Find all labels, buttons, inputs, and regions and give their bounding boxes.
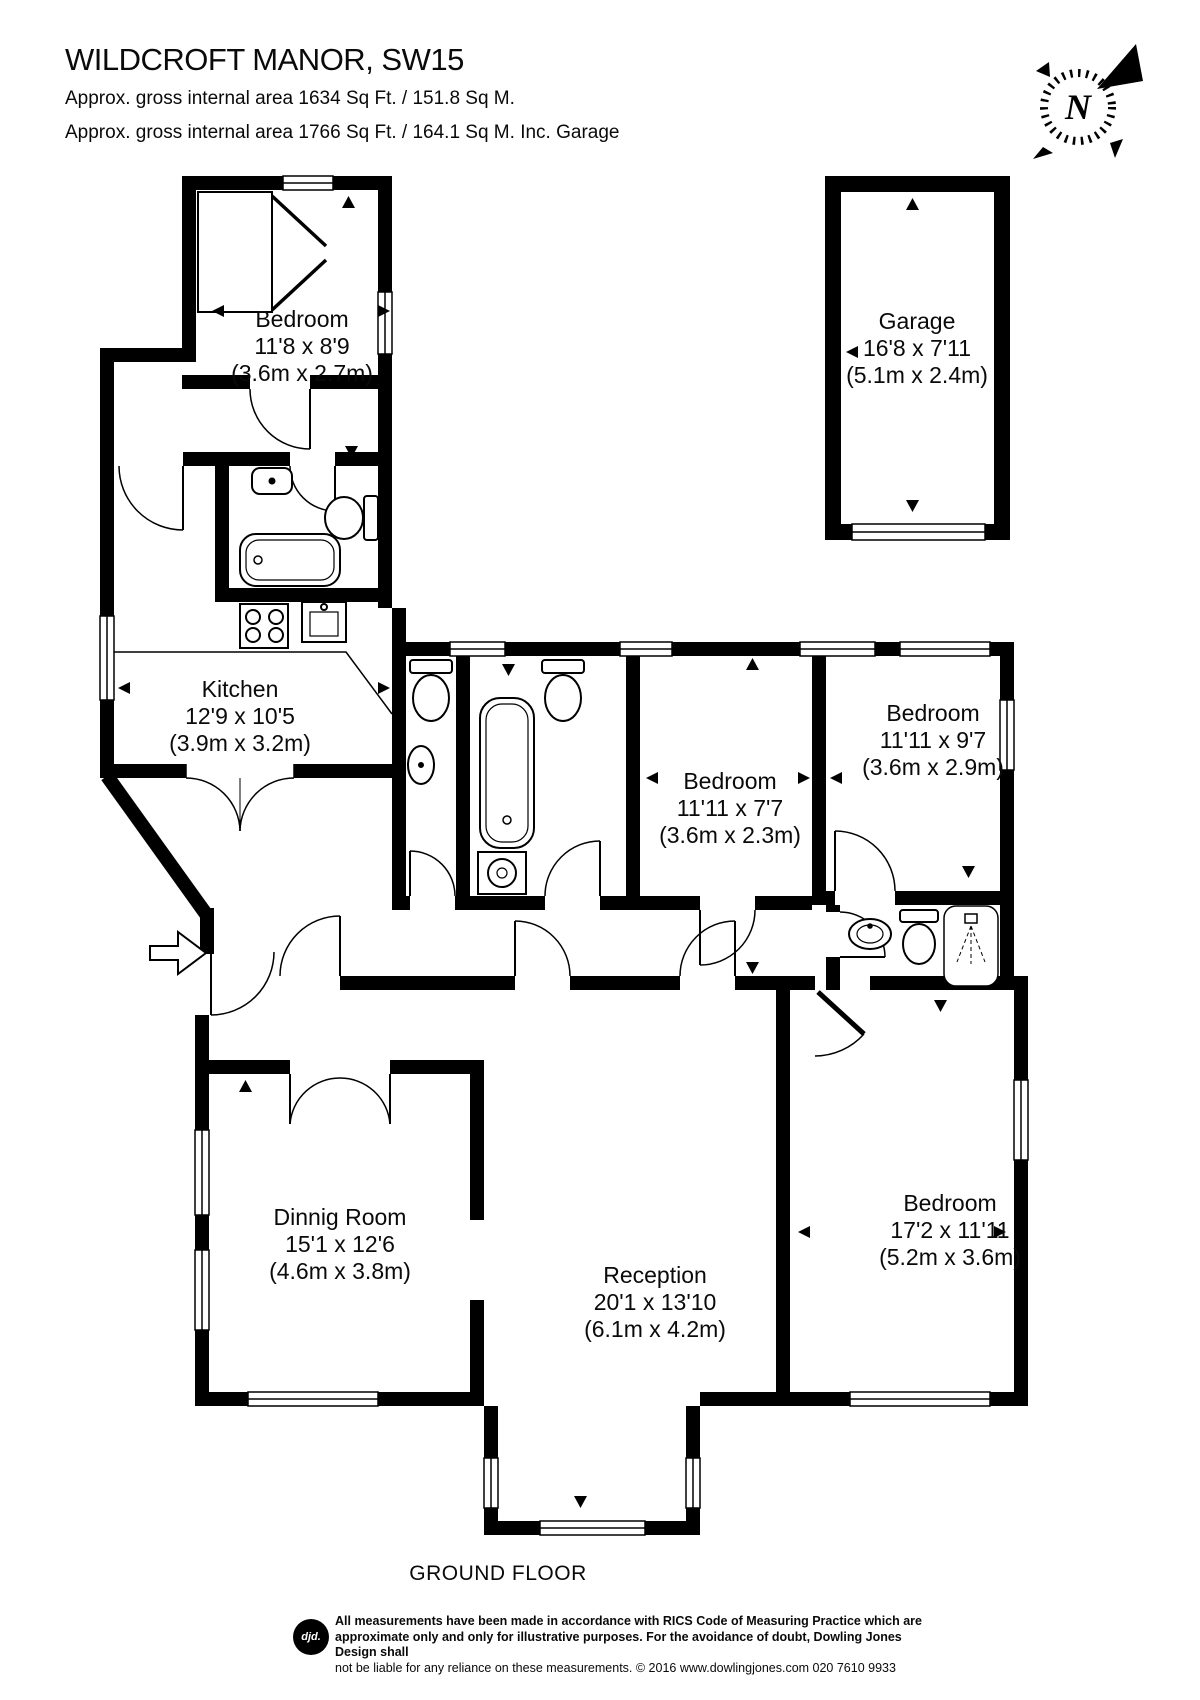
room-label-bedroom-3: Bedroom 11'11 x 9'7 (3.6m x 2.9m) (823, 700, 1043, 781)
floor-label: GROUND FLOOR (388, 1562, 608, 1586)
room-size-ft: 12'9 x 10'5 (130, 703, 350, 730)
room-name: Bedroom (192, 306, 412, 333)
room-label-bedroom-4: Bedroom 17'2 x 11'11 (5.2m x 3.6m) (840, 1190, 1060, 1271)
room-size-m: (3.6m x 2.3m) (620, 822, 840, 849)
floorplan-drawing: N (0, 0, 1200, 1700)
toilet-icon (410, 660, 452, 721)
room-name: Kitchen (130, 676, 350, 703)
room-label-reception: Reception 20'1 x 13'10 (6.1m x 4.2m) (545, 1262, 765, 1343)
room-label-bedroom-2: Bedroom 11'11 x 7'7 (3.6m x 2.3m) (620, 768, 840, 849)
room-size-m: (3.6m x 2.9m) (823, 754, 1043, 781)
area-line-1: Approx. gross internal area 1634 Sq Ft. … (65, 88, 515, 110)
compass-north-label: N (1064, 87, 1093, 127)
room-label-bedroom-1: Bedroom 11'8 x 8'9 (3.6m x 2.7m) (192, 306, 412, 387)
diagonal-wall (107, 776, 206, 914)
toilet-icon (325, 496, 378, 540)
room-size-ft: 20'1 x 13'10 (545, 1289, 765, 1316)
washing-machine-icon (478, 852, 526, 894)
room-label-kitchen: Kitchen 12'9 x 10'5 (3.9m x 3.2m) (130, 676, 350, 757)
toilet-icon (900, 910, 938, 964)
bathtub-icon (240, 534, 340, 586)
room-size-m: (3.6m x 2.7m) (192, 360, 412, 387)
room-name: Bedroom (840, 1190, 1060, 1217)
entrance-arrow-icon (150, 932, 206, 974)
room-name: Bedroom (620, 768, 840, 795)
basin-icon (408, 746, 434, 784)
basin-icon (849, 919, 891, 949)
room-size-m: (4.6m x 3.8m) (230, 1258, 450, 1285)
room-size-m: (5.1m x 2.4m) (807, 362, 1027, 389)
room-name: Garage (807, 308, 1027, 335)
room-size-ft: 11'11 x 7'7 (620, 795, 840, 822)
room-size-m: (3.9m x 3.2m) (130, 730, 350, 757)
djd-logo: djd. (293, 1619, 329, 1655)
room-size-ft: 15'1 x 12'6 (230, 1231, 450, 1258)
room-name: Bedroom (823, 700, 1043, 727)
toilet-icon (542, 660, 584, 721)
page-title: WILDCROFT MANOR, SW15 (65, 42, 464, 78)
room-size-m: (6.1m x 4.2m) (545, 1316, 765, 1343)
disclaimer-line-2: approximate only and only for illustrati… (335, 1630, 927, 1661)
room-size-m: (5.2m x 3.6m) (840, 1244, 1060, 1271)
room-size-ft: 16'8 x 7'11 (807, 335, 1027, 362)
basin-icon (252, 468, 292, 494)
room-name: Dinnig Room (230, 1204, 450, 1231)
wardrobe-icon (198, 192, 326, 312)
bathtub-icon (480, 698, 534, 848)
shower-icon (944, 906, 998, 986)
area-line-2: Approx. gross internal area 1766 Sq Ft. … (65, 122, 619, 144)
room-size-ft: 11'8 x 8'9 (192, 333, 412, 360)
compass-icon: N (1033, 44, 1143, 159)
room-name: Reception (545, 1262, 765, 1289)
room-label-garage: Garage 16'8 x 7'11 (5.1m x 2.4m) (807, 308, 1027, 389)
hob-icon (240, 604, 288, 648)
disclaimer-line-3: not be liable for any reliance on these … (335, 1661, 927, 1677)
disclaimer: All measurements have been made in accor… (335, 1614, 927, 1676)
room-size-ft: 17'2 x 11'11 (840, 1217, 1060, 1244)
floorplan-page: N WILDCROFT MANOR, SW15 Approx. gross in… (0, 0, 1200, 1700)
room-label-dining-room: Dinnig Room 15'1 x 12'6 (4.6m x 3.8m) (230, 1204, 450, 1285)
disclaimer-line-1: All measurements have been made in accor… (335, 1614, 927, 1630)
kitchen-sink-icon (302, 602, 346, 642)
room-size-ft: 11'11 x 9'7 (823, 727, 1043, 754)
